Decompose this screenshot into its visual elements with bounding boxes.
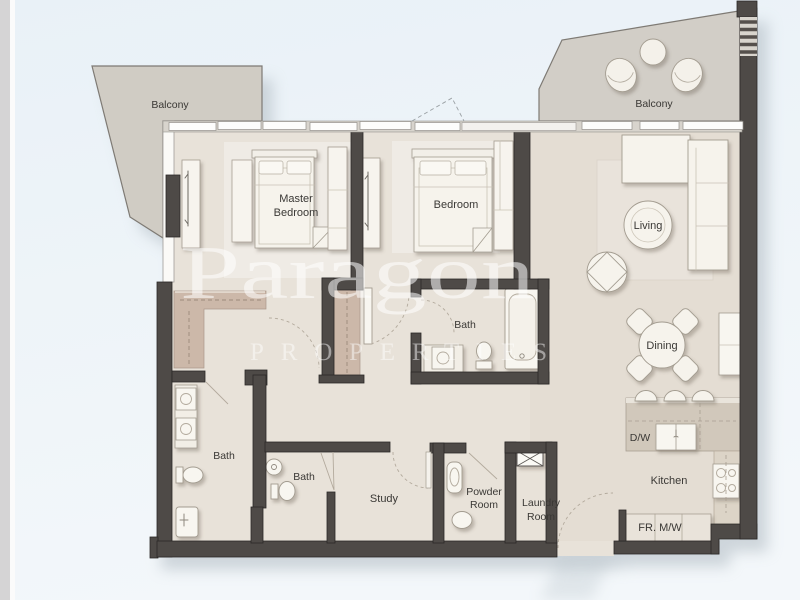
svg-text:Bedroom: Bedroom [434, 199, 479, 211]
svg-text:Master: Master [279, 193, 313, 205]
svg-text:Bath: Bath [293, 471, 315, 483]
svg-text:Laundry: Laundry [522, 497, 561, 509]
svg-text:FR. M/W: FR. M/W [638, 522, 682, 534]
svg-text:Bedroom: Bedroom [274, 207, 319, 219]
svg-text:D/W: D/W [630, 432, 651, 444]
svg-text:Study: Study [370, 493, 399, 505]
svg-text:Kitchen: Kitchen [651, 475, 688, 487]
svg-text:Powder: Powder [466, 486, 502, 498]
svg-text:Room: Room [470, 499, 498, 511]
svg-text:Room: Room [527, 511, 555, 523]
svg-text:Paragon: Paragon [180, 231, 535, 315]
svg-text:Living: Living [634, 220, 663, 232]
svg-text:Bath: Bath [454, 319, 476, 331]
svg-text:Balcony: Balcony [151, 99, 189, 111]
svg-text:Dining: Dining [646, 340, 677, 352]
svg-text:Bath: Bath [213, 450, 235, 462]
svg-text:Balcony: Balcony [635, 98, 673, 110]
